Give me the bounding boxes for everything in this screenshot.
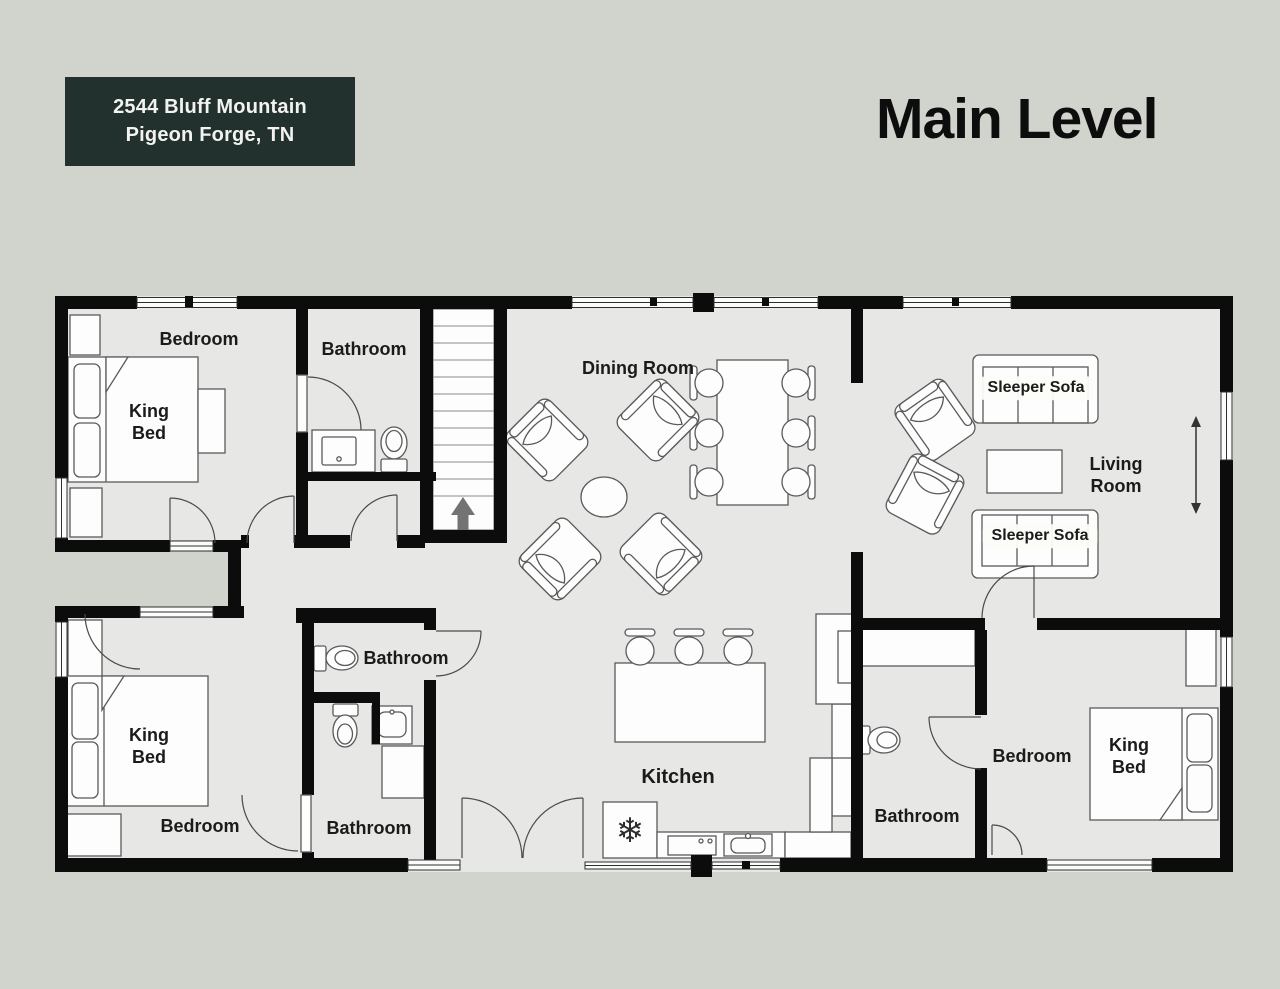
- room-label-bathroom: Bathroom: [322, 339, 407, 361]
- furniture-label-king-bed: King Bed: [1103, 735, 1155, 779]
- window: [1047, 860, 1152, 870]
- room-label-kitchen: Kitchen: [641, 765, 714, 789]
- dresser: [1186, 628, 1216, 686]
- bar-stools: [625, 629, 753, 665]
- snowflake-icon: ❄: [616, 812, 645, 850]
- window: [56, 478, 67, 538]
- window: [408, 860, 460, 870]
- window: [903, 298, 1011, 308]
- kitchen-island: [615, 663, 765, 742]
- window: [1221, 637, 1232, 687]
- sink-vanity: [312, 430, 375, 472]
- window: [1221, 392, 1232, 460]
- stove: [668, 836, 716, 855]
- window: [714, 298, 818, 308]
- sink-vanity: [862, 628, 975, 666]
- dining-table: [717, 360, 788, 505]
- furniture-label-king-bed: King Bed: [123, 725, 175, 769]
- furniture-label-sleeper-sofa: Sleeper Sofa: [983, 524, 1098, 548]
- kitchen-sink: [724, 834, 772, 857]
- toilet: [333, 704, 358, 747]
- refrigerator: ❄: [603, 802, 657, 858]
- round-side-table: [581, 477, 627, 517]
- toilet: [314, 646, 358, 671]
- glass-door: [170, 541, 213, 551]
- toilet: [858, 726, 900, 754]
- furniture-label-king-bed: King Bed: [123, 401, 175, 445]
- room-label-bathroom: Bathroom: [875, 806, 960, 828]
- window: [585, 862, 691, 869]
- room-label-living-room: Living Room: [1077, 454, 1155, 498]
- bench: [198, 389, 225, 453]
- window: [712, 861, 780, 869]
- toilet: [381, 427, 407, 472]
- room-label-bedroom: Bedroom: [159, 329, 238, 351]
- staircase: [433, 309, 494, 531]
- room-label-bathroom: Bathroom: [327, 818, 412, 840]
- dresser: [65, 814, 121, 856]
- room-label-dining-room: Dining Room: [582, 358, 694, 380]
- floor-plan-page: 2544 Bluff Mountain Pigeon Forge, TN Mai…: [0, 0, 1280, 989]
- window: [56, 622, 67, 677]
- room-label-bedroom: Bedroom: [160, 816, 239, 838]
- wardrobe: [68, 620, 102, 680]
- window: [137, 296, 237, 308]
- glass-door: [140, 607, 213, 617]
- room-label-bathroom: Bathroom: [364, 648, 449, 670]
- room-label-bedroom: Bedroom: [992, 746, 1071, 768]
- window: [572, 298, 693, 308]
- furniture-label-sleeper-sofa: Sleeper Sofa: [979, 376, 1094, 400]
- shower: [382, 746, 424, 798]
- coffee-table: [987, 450, 1062, 493]
